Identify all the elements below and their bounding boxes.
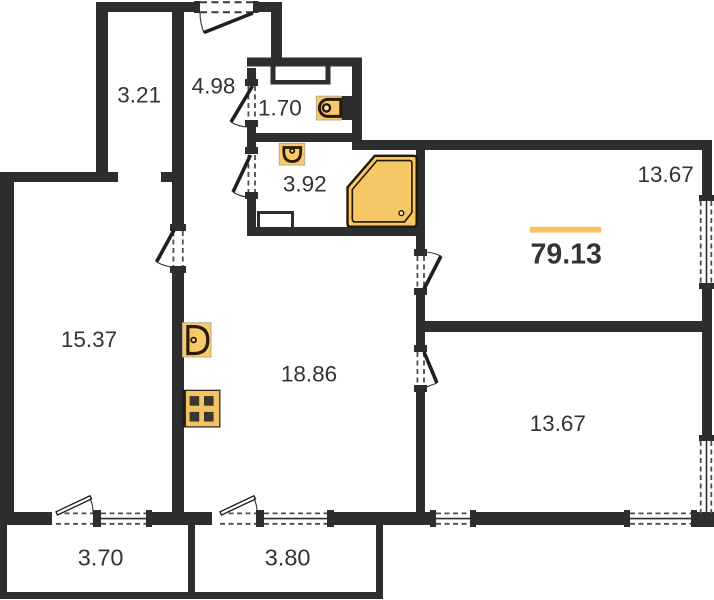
svg-text:3.80: 3.80	[265, 545, 311, 571]
svg-text:3.21: 3.21	[117, 82, 161, 107]
svg-text:1.70: 1.70	[258, 95, 302, 120]
svg-text:3.70: 3.70	[78, 545, 124, 571]
svg-text:13.67: 13.67	[637, 162, 693, 187]
svg-text:18.86: 18.86	[281, 362, 337, 387]
svg-text:3.92: 3.92	[283, 172, 327, 197]
svg-text:79.13: 79.13	[531, 238, 602, 270]
svg-text:15.37: 15.37	[61, 327, 117, 352]
svg-text:13.67: 13.67	[530, 411, 586, 436]
svg-text:4.98: 4.98	[192, 73, 236, 98]
